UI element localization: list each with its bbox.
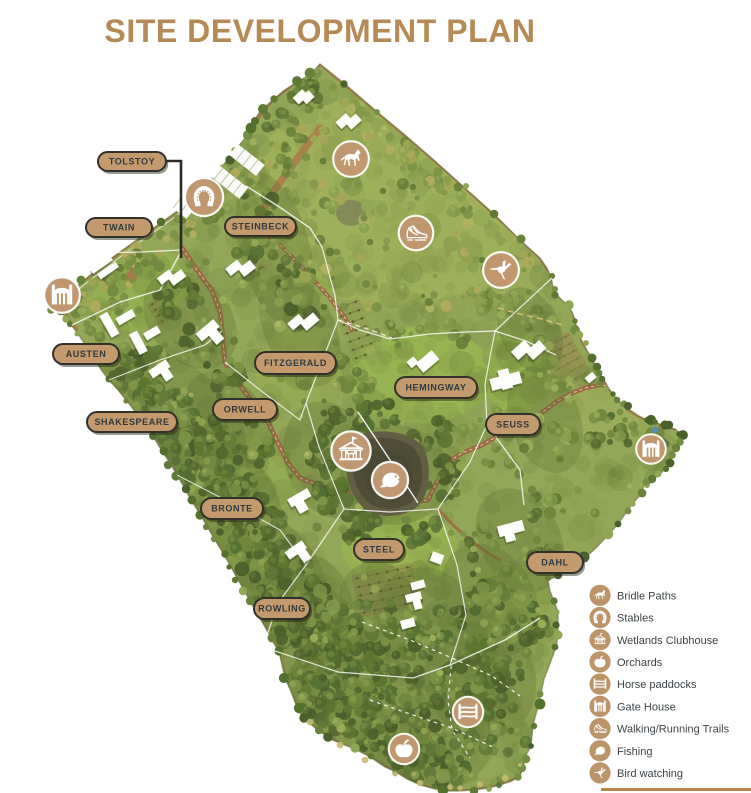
svg-text:STEEL: STEEL bbox=[363, 545, 395, 555]
svg-text:Bridle Paths: Bridle Paths bbox=[617, 590, 677, 602]
svg-text:FITZGERALD: FITZGERALD bbox=[264, 358, 327, 368]
svg-text:Walking/Running Trails: Walking/Running Trails bbox=[617, 724, 730, 736]
svg-text:AUSTEN: AUSTEN bbox=[66, 349, 107, 359]
svg-text:Horse paddocks: Horse paddocks bbox=[617, 679, 697, 691]
svg-text:Orchards: Orchards bbox=[617, 657, 663, 669]
svg-text:Gate House: Gate House bbox=[617, 701, 676, 713]
svg-text:SHAKESPEARE: SHAKESPEARE bbox=[94, 417, 169, 427]
svg-text:Wetlands Clubhouse: Wetlands Clubhouse bbox=[617, 635, 718, 647]
svg-text:ORWELL: ORWELL bbox=[224, 405, 266, 415]
svg-text:TWAIN: TWAIN bbox=[103, 223, 135, 233]
svg-text:BRONTE: BRONTE bbox=[211, 504, 253, 514]
svg-text:STEINBECK: STEINBECK bbox=[232, 222, 289, 232]
svg-text:DAHL: DAHL bbox=[541, 558, 568, 568]
svg-text:TOLSTOY: TOLSTOY bbox=[109, 157, 155, 167]
svg-text:Fishing: Fishing bbox=[617, 746, 652, 758]
svg-text:Stables: Stables bbox=[617, 613, 654, 625]
svg-text:SITE DEVELOPMENT PLAN: SITE DEVELOPMENT PLAN bbox=[104, 13, 535, 49]
svg-text:ROWLING: ROWLING bbox=[258, 604, 306, 614]
svg-text:Bird watching: Bird watching bbox=[617, 768, 683, 780]
svg-text:SEUSS: SEUSS bbox=[496, 420, 530, 430]
svg-text:HEMINGWAY: HEMINGWAY bbox=[405, 383, 466, 393]
